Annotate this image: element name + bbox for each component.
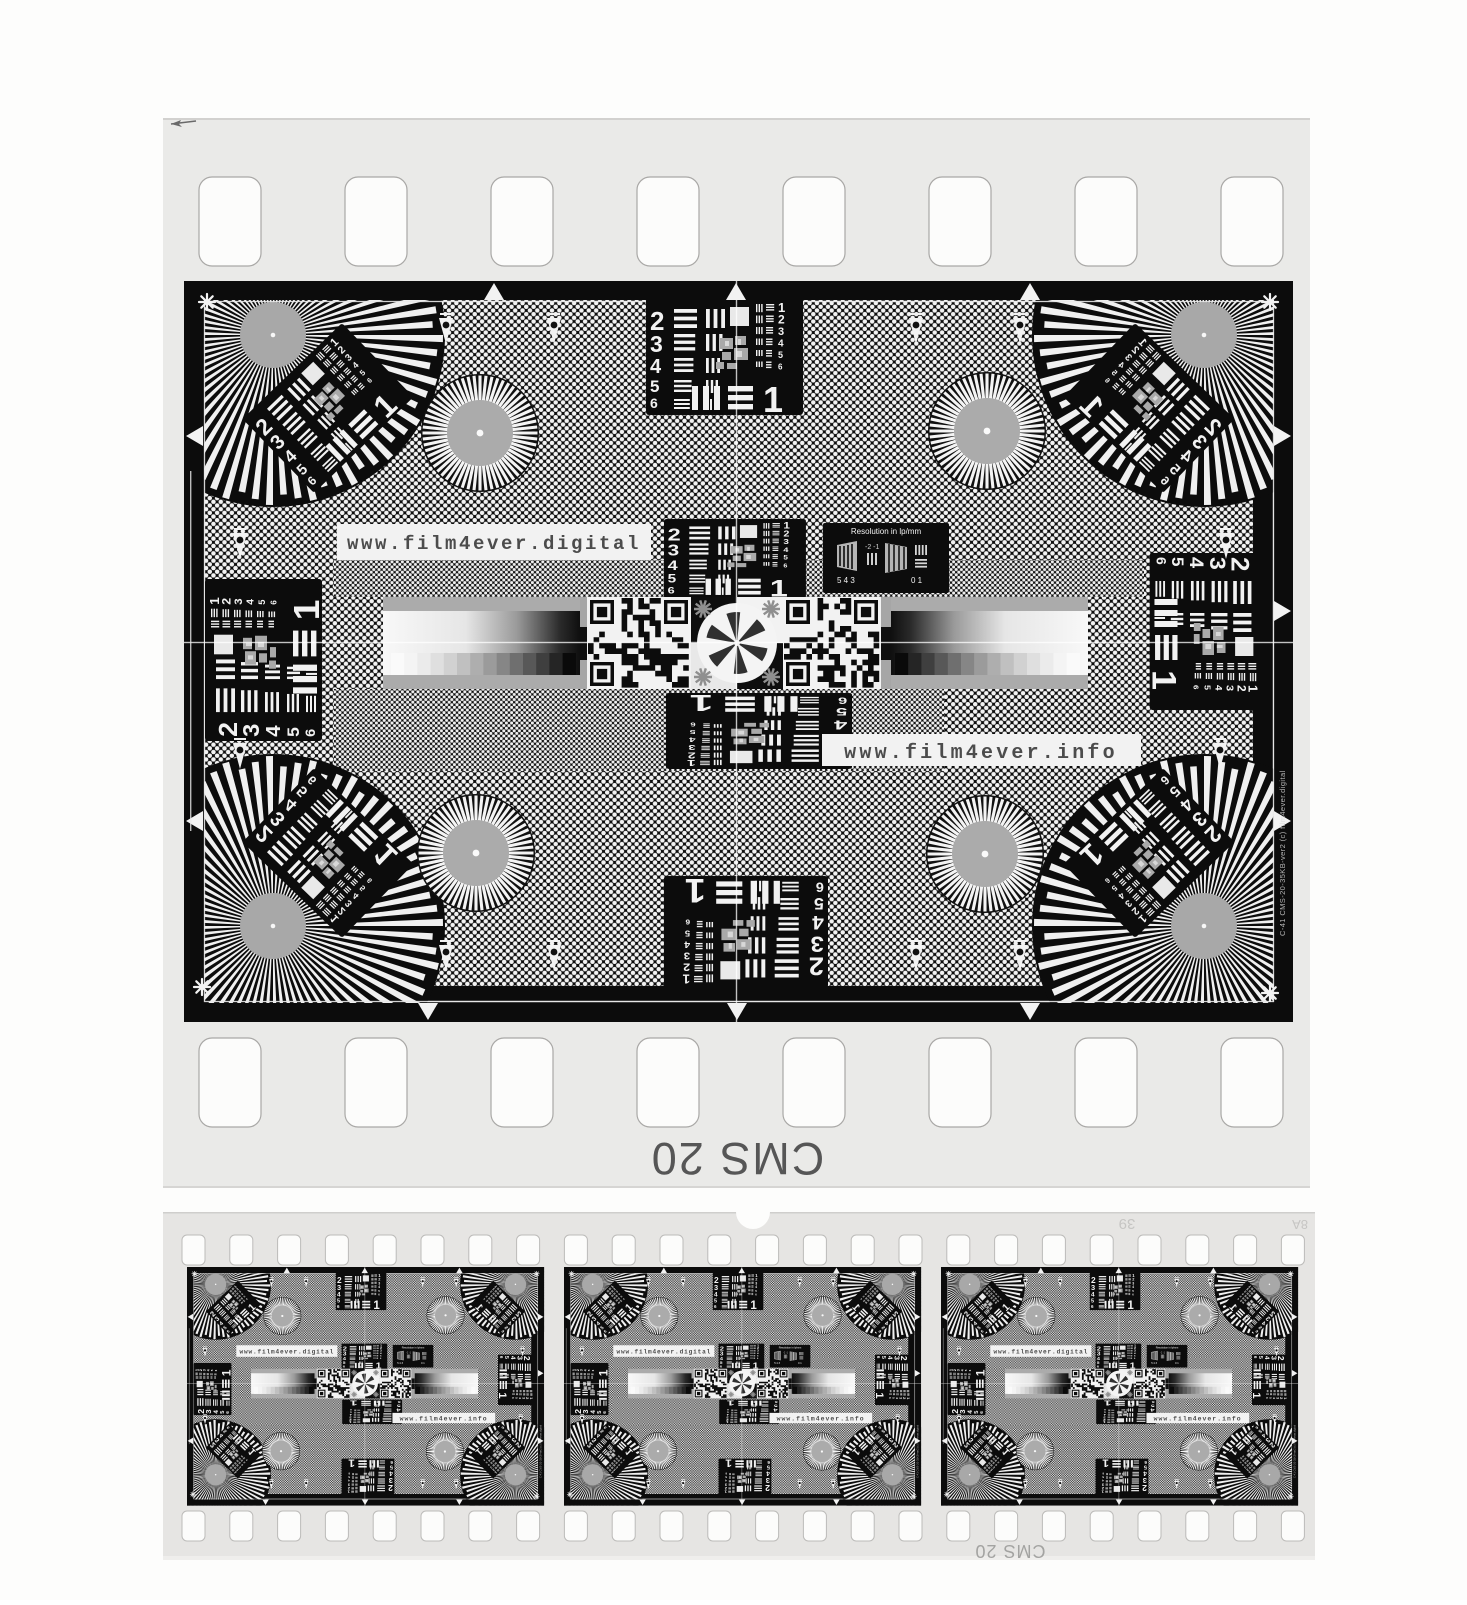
- svg-text:39: 39: [1119, 1215, 1136, 1232]
- svg-text:CMS 20: CMS 20: [974, 1541, 1045, 1561]
- svg-text:8A: 8A: [1292, 1217, 1308, 1232]
- svg-text:CMS 20: CMS 20: [650, 1133, 825, 1184]
